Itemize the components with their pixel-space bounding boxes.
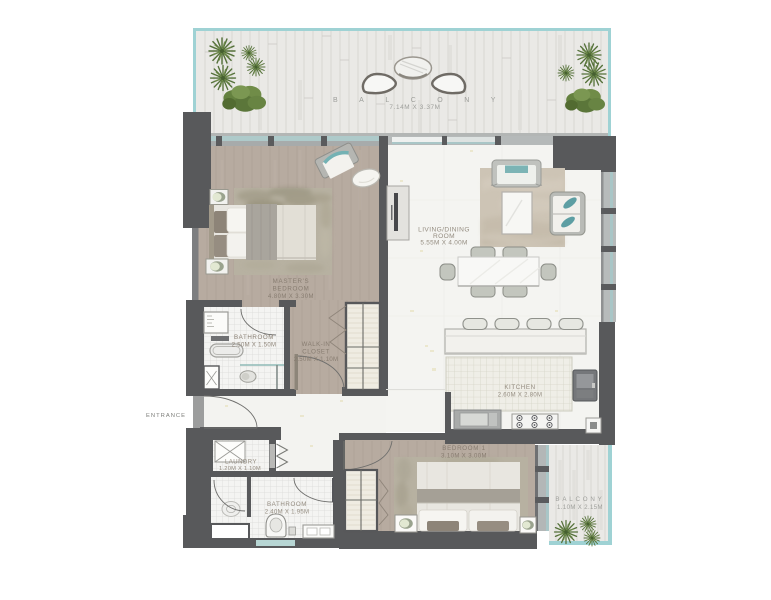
svg-text:KITCHEN: KITCHEN [504, 384, 535, 391]
svg-text:5.55M X 4.00M: 5.55M X 4.00M [420, 240, 467, 247]
svg-text:CLOSET: CLOSET [302, 349, 329, 356]
svg-text:BATHROOM: BATHROOM [234, 334, 274, 341]
svg-text:7.14M X 3.37M: 7.14M X 3.37M [389, 104, 440, 111]
svg-text:BATHROOM: BATHROOM [267, 501, 307, 508]
svg-text:MASTER'S: MASTER'S [273, 278, 310, 285]
svg-text:1.10M X 2.15M: 1.10M X 2.15M [557, 505, 603, 511]
svg-text:BEDROOM 1: BEDROOM 1 [442, 445, 485, 452]
svg-text:2.50M X 1.50M: 2.50M X 1.50M [232, 343, 277, 349]
svg-text:BEDROOM: BEDROOM [273, 286, 310, 293]
svg-text:2.40M X 1.95M: 2.40M X 1.95M [265, 510, 310, 516]
svg-text:1.20M X 1.10M: 1.20M X 1.10M [219, 466, 261, 472]
svg-text:2.60M X 2.80M: 2.60M X 2.80M [498, 393, 543, 399]
svg-text:ENTRANCE: ENTRANCE [146, 413, 186, 419]
svg-text:BALCONY: BALCONY [333, 97, 517, 104]
svg-text:WALK-IN: WALK-IN [302, 341, 331, 348]
svg-text:3.10M X 3.00M: 3.10M X 3.00M [441, 454, 487, 460]
svg-text:BALCONY: BALCONY [555, 496, 604, 503]
svg-text:2.50M X 1.10M: 2.50M X 1.10M [294, 357, 339, 363]
svg-text:LAUNDRY: LAUNDRY [225, 460, 257, 466]
svg-text:4.80M X 3.30M: 4.80M X 3.30M [268, 294, 314, 300]
